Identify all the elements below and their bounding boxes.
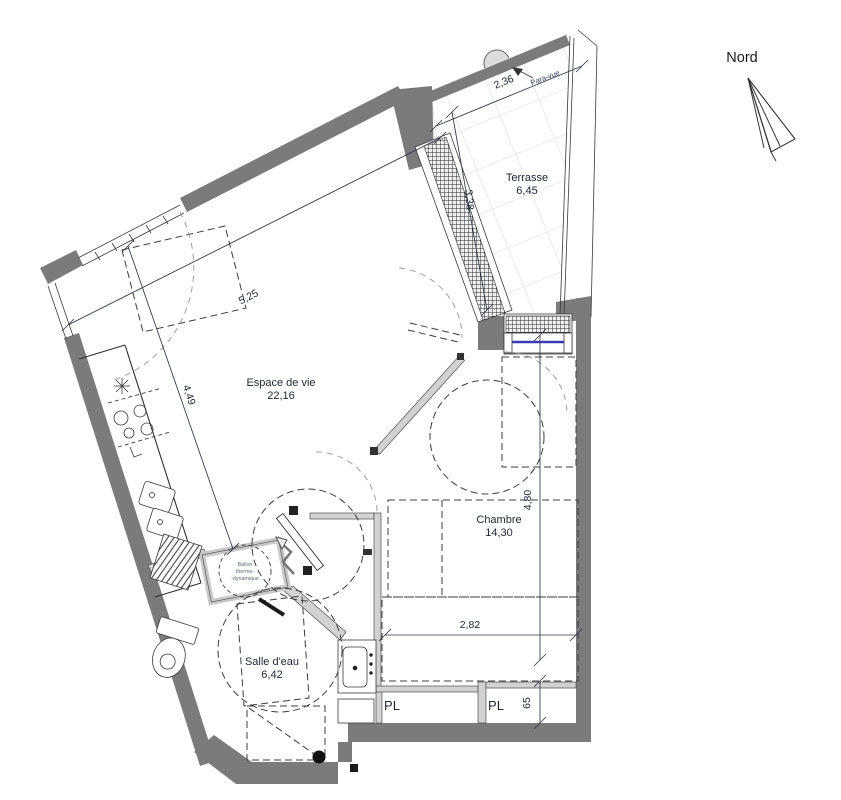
wall-top-left (180, 86, 406, 212)
living-wardrobe (122, 226, 246, 332)
label-ballon-1: Ballon (238, 562, 253, 568)
living-window-top-left (78, 205, 184, 266)
dim-chambre-depth: 4,80 (522, 490, 534, 511)
diagonal-wall-hinge-bottom (370, 447, 378, 455)
shower-access-zone (237, 596, 309, 706)
diagonal-wall-hinge-top (457, 353, 464, 360)
label-salle-deau-area: 6,42 (261, 669, 282, 681)
bathroom-sliding-door (259, 599, 284, 615)
window-swing-arc (111, 212, 194, 381)
partition-vestibule-top (310, 513, 374, 519)
closet2-front-wall (486, 682, 576, 688)
dim-terrasse-depth: 3,38 (462, 189, 476, 211)
washbasin-vanity (338, 640, 376, 723)
kitchen-faucet-icon (130, 447, 142, 457)
wall-bottom-right (348, 723, 591, 742)
label-terrasse: Terrasse (506, 172, 548, 184)
label-ballon-2: thermo- (236, 569, 254, 575)
corner-window (48, 283, 73, 339)
label-espace-de-vie-area: 22,16 (267, 390, 295, 402)
label-chambre: Chambre (476, 514, 521, 526)
terrace-outer-edge (578, 30, 597, 317)
label-terrasse-area: 6,45 (516, 185, 537, 197)
chambre-door-swing-arc (316, 452, 377, 513)
turning-circle-chambre (430, 380, 544, 494)
chambre-window-swing-arc (505, 352, 567, 414)
partition-bath-vestibule (283, 586, 346, 640)
wall-chambre-window-side (478, 316, 506, 350)
turning-circle-vestibule (252, 489, 364, 601)
cooktop-burners (114, 405, 153, 438)
terrace-door-swing-arc (399, 268, 462, 338)
partition-door-stop (363, 549, 372, 555)
wall-exterior-tick (350, 764, 358, 772)
closet-divider-wall (478, 682, 486, 723)
north-arrow-icon: Nord (726, 50, 795, 161)
dim-chambre-width: 2,82 (460, 619, 481, 631)
vanity-lower-unit (338, 699, 374, 723)
dim-placard-depth: 65 (521, 697, 533, 709)
partition-diagonal (374, 356, 464, 455)
turning-circle-bathroom (218, 588, 342, 712)
closet-left-wall (376, 688, 382, 723)
shower-drain (313, 751, 326, 764)
wall-bottom-step (338, 742, 352, 762)
toilet (144, 616, 199, 682)
label-chambre-area: 14,30 (485, 527, 513, 539)
chambre-window-assembly (504, 314, 572, 354)
extractor-star-icon (114, 378, 130, 394)
label-placard-2: PL (488, 698, 504, 713)
north-label: Nord (726, 50, 757, 66)
chambre-wardrobe (502, 357, 576, 467)
label-ballon-3: -dynamique (231, 576, 259, 582)
dim-living-width: 5,25 (237, 287, 261, 307)
floor-plan-drawing: 2,36 3,38 5,25 4,49 4,80 2,82 65 Terrass… (0, 0, 841, 800)
closet1-front-wall (376, 686, 478, 692)
floor-plan-page: 2,36 3,38 5,25 4,49 4,80 2,82 65 Terrass… (0, 0, 841, 800)
label-salle-deau: Salle d'eau (245, 656, 299, 668)
shower (247, 706, 326, 764)
chambre-window-shutter (506, 316, 570, 333)
label-placard-1: PL (384, 698, 400, 713)
label-espace-de-vie: Espace de vie (246, 377, 315, 389)
chambre-storage-zone (382, 597, 578, 681)
wall-top-left-end (40, 250, 83, 284)
